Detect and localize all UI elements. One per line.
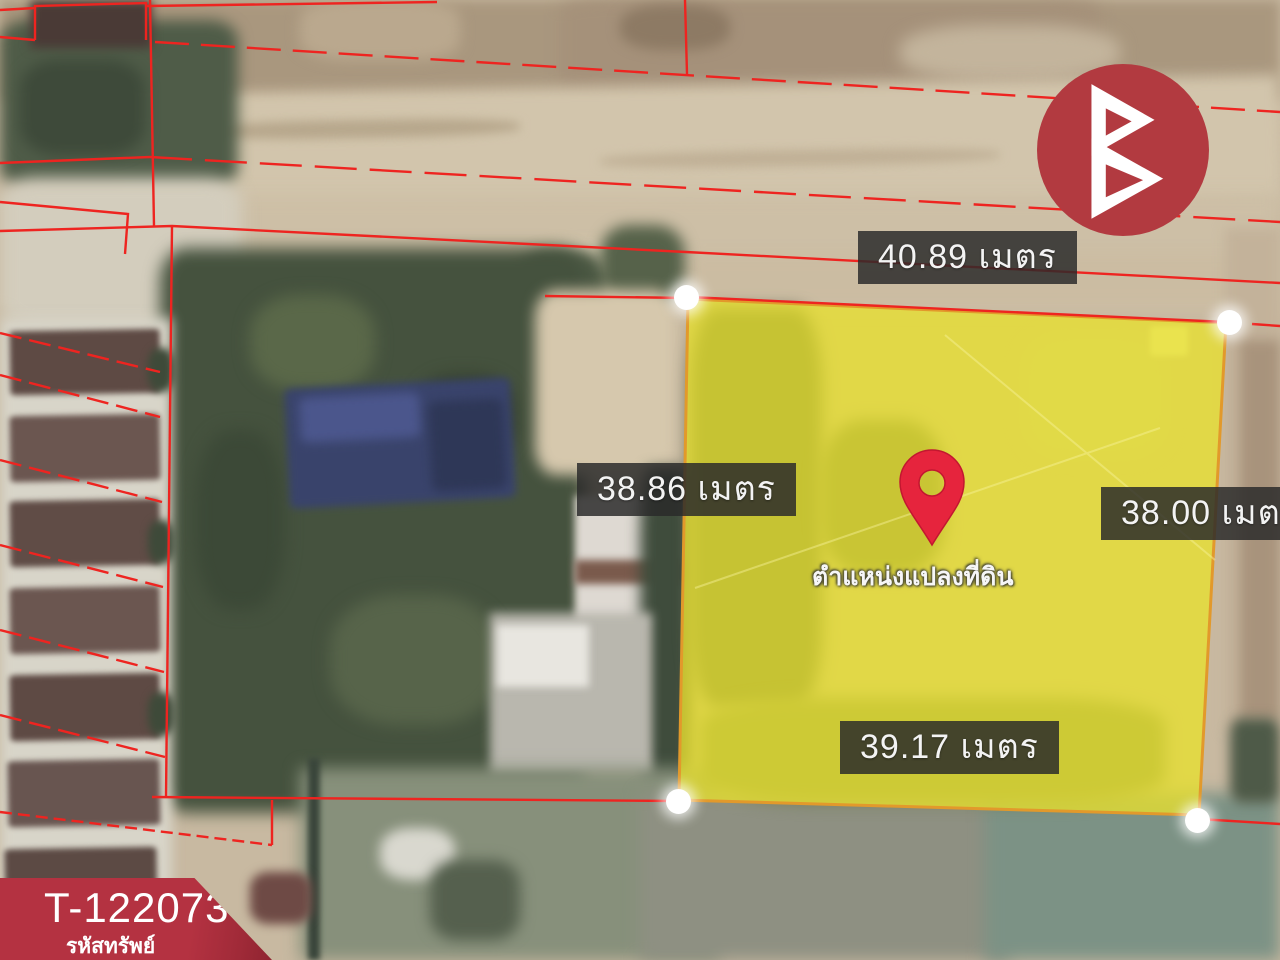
plot-corner-handle-bottom-left[interactable] <box>666 789 691 814</box>
property-code-label: รหัสทรัพย์ <box>66 930 155 960</box>
brand-logo <box>1037 64 1209 236</box>
plot-corner-handle-top-right[interactable] <box>1217 310 1242 335</box>
property-code: T-122073 <box>44 884 229 932</box>
dimension-label-right: 38.00 เมตร <box>1101 487 1280 540</box>
dimension-label-top: 40.89 เมตร <box>858 231 1077 284</box>
brand-logo-circle <box>1037 64 1209 236</box>
dimension-label-left: 38.86 เมตร <box>577 463 796 516</box>
plot-corner-handle-top-left[interactable] <box>674 285 699 310</box>
satellite-map: 40.89 เมตร 38.86 เมตร 38.00 เมตร 39.17 เ… <box>0 0 1280 960</box>
dimension-label-bottom: 39.17 เมตร <box>840 721 1059 774</box>
plot-corner-handle-bottom-right[interactable] <box>1185 808 1210 833</box>
pin-caption: ตำแหน่งแปลงที่ดิน <box>812 557 1013 597</box>
